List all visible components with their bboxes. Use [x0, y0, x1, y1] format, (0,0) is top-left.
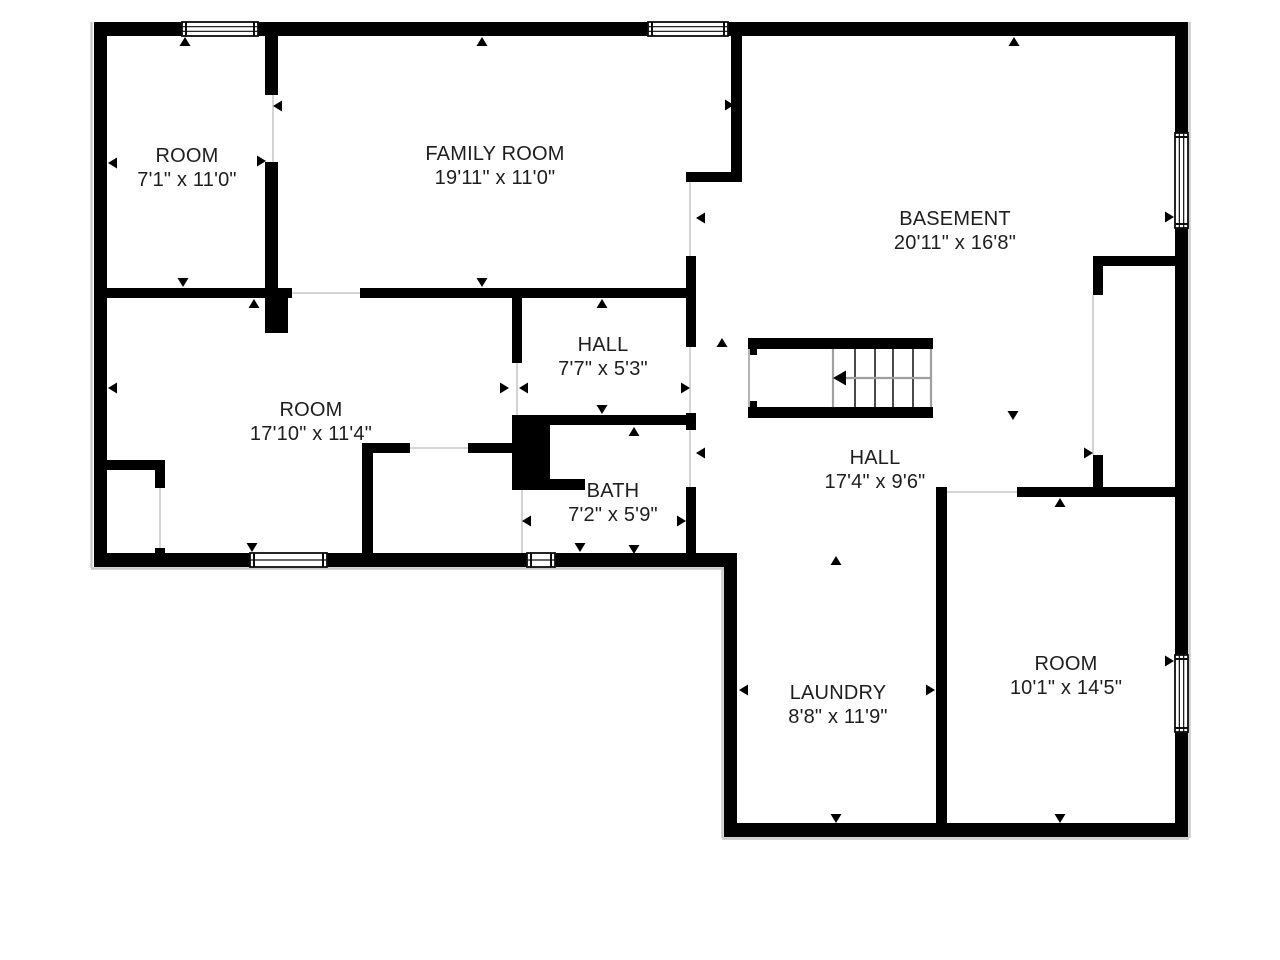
door-marker	[926, 685, 935, 696]
wall	[360, 288, 690, 298]
door-marker	[739, 685, 748, 696]
room-label-family-room: FAMILY ROOM	[425, 143, 564, 165]
door-marker	[629, 427, 640, 436]
door-marker	[108, 158, 117, 169]
room-dims-room-top-left: 7'1" x 11'0"	[137, 169, 236, 191]
room-label-room-middle: ROOM	[279, 399, 342, 421]
door-marker	[696, 448, 705, 459]
floorplan-svg: ROOM7'1" x 11'0"FAMILY ROOM19'11" x 11'0…	[0, 0, 1280, 960]
wall	[362, 443, 373, 553]
door-marker	[831, 556, 842, 565]
window	[648, 22, 728, 36]
wall	[936, 487, 947, 823]
room-dims-family-room: 19'11" x 11'0"	[435, 167, 556, 189]
wall	[731, 22, 742, 182]
door-marker	[1008, 411, 1019, 420]
room-dims-laundry: 8'8" x 11'9"	[788, 706, 887, 728]
stairs-top-rail	[748, 338, 933, 349]
wall	[265, 288, 288, 333]
wall	[550, 479, 585, 490]
door-marker	[717, 338, 728, 347]
door-marker	[257, 156, 266, 167]
window	[1175, 133, 1188, 228]
door-marker	[1084, 448, 1093, 459]
room-label-hall-small: HALL	[578, 334, 629, 356]
door-marker	[1009, 37, 1020, 46]
door-marker	[519, 383, 528, 394]
window	[182, 22, 258, 36]
stairs-direction-arrow	[833, 371, 846, 386]
door-marker	[500, 383, 509, 394]
wall	[724, 823, 1188, 837]
door-marker	[597, 299, 608, 308]
room-label-hall-large: HALL	[850, 447, 901, 469]
room-dims-room-bottom-right: 10'1" x 14'5"	[1010, 677, 1122, 699]
wall	[686, 487, 696, 553]
wall	[1093, 455, 1103, 488]
wall	[1093, 256, 1175, 266]
door-marker	[1165, 656, 1174, 667]
room-label-room-bottom-right: ROOM	[1034, 653, 1097, 675]
wall	[512, 298, 522, 363]
room-dims-hall-small: 7'7" x 5'3"	[558, 358, 648, 380]
door-marker	[273, 101, 282, 112]
room-label-room-top-left: ROOM	[155, 145, 218, 167]
door-marker	[1165, 212, 1174, 223]
room-label-laundry: LAUNDRY	[790, 682, 887, 704]
room-label-basement: BASEMENT	[899, 208, 1011, 230]
door-marker	[1055, 814, 1066, 823]
wall	[468, 443, 518, 453]
floor-plan-page: ROOM7'1" x 11'0"FAMILY ROOM19'11" x 11'0…	[0, 0, 1280, 960]
window	[1175, 655, 1188, 732]
door-marker	[681, 383, 690, 394]
wall	[94, 288, 292, 298]
door-marker	[477, 278, 488, 287]
door-marker	[1055, 498, 1066, 507]
room-dims-basement: 20'11" x 16'8"	[894, 232, 1016, 254]
door-marker	[597, 405, 608, 414]
door-marker	[249, 299, 260, 308]
door-marker	[477, 37, 488, 46]
door-marker	[575, 543, 586, 552]
door-marker	[180, 37, 191, 46]
door-marker	[696, 213, 705, 224]
door-marker	[108, 383, 117, 394]
wall	[1017, 487, 1175, 497]
door-marker	[522, 516, 531, 527]
room-dims-hall-large: 17'4" x 9'6"	[825, 471, 926, 493]
wall	[724, 553, 737, 837]
door-marker	[629, 545, 640, 554]
door-marker	[247, 543, 258, 552]
wall	[265, 162, 278, 298]
wall	[265, 22, 278, 95]
wall	[686, 172, 742, 182]
wall	[94, 553, 737, 567]
door-marker	[677, 516, 686, 527]
wall	[155, 548, 165, 556]
door-marker	[178, 278, 189, 287]
stairs-bottom-rail	[748, 407, 933, 418]
door-marker	[831, 814, 842, 823]
room-label-bath: BATH	[587, 480, 640, 502]
wall	[686, 256, 696, 347]
wall	[1093, 256, 1103, 295]
room-dims-bath: 7'2" x 5'9"	[568, 504, 658, 526]
wall	[155, 460, 165, 488]
wall	[94, 460, 165, 470]
room-dims-room-middle: 17'10" x 11'4"	[250, 423, 372, 445]
